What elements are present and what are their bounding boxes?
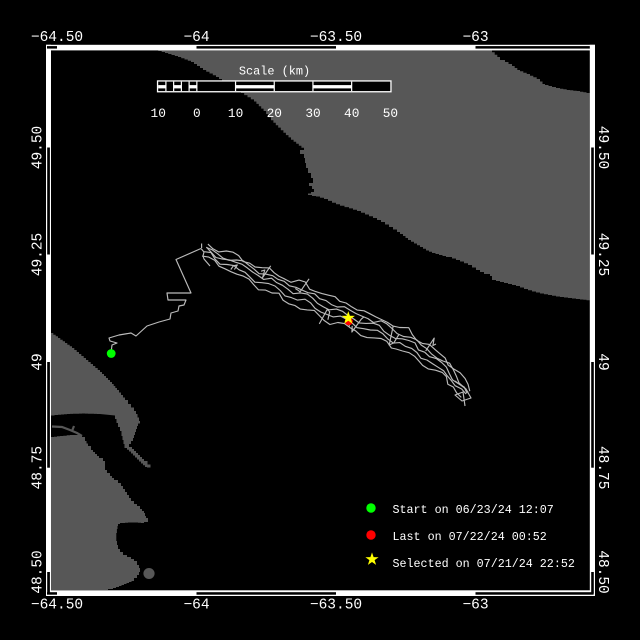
svg-text:−64.50: −64.50 <box>31 598 83 614</box>
svg-text:40: 40 <box>344 106 359 121</box>
svg-text:48.75: 48.75 <box>594 446 610 490</box>
svg-text:Scale (km): Scale (km) <box>239 65 310 79</box>
svg-text:49.50: 49.50 <box>594 126 610 170</box>
svg-text:−63: −63 <box>462 598 488 614</box>
svg-text:10: 10 <box>228 106 243 121</box>
svg-text:20: 20 <box>267 106 282 121</box>
svg-text:−64: −64 <box>183 598 209 614</box>
svg-text:49.25: 49.25 <box>594 233 610 277</box>
svg-text:49.25: 49.25 <box>31 233 47 277</box>
svg-text:50: 50 <box>383 106 398 121</box>
svg-text:−63: −63 <box>462 30 488 46</box>
svg-text:Start on 06/23/24 12:07: Start on 06/23/24 12:07 <box>393 503 554 517</box>
svg-text:Selected on 07/21/24 22:52: Selected on 07/21/24 22:52 <box>393 557 575 571</box>
svg-text:0: 0 <box>193 106 201 121</box>
svg-text:49: 49 <box>31 353 47 370</box>
svg-text:10: 10 <box>151 106 166 121</box>
svg-text:−63.50: −63.50 <box>310 598 362 614</box>
svg-text:Last on 07/22/24 00:52: Last on 07/22/24 00:52 <box>393 530 547 544</box>
svg-text:48.50: 48.50 <box>31 550 47 594</box>
svg-text:48.75: 48.75 <box>31 446 47 490</box>
svg-text:48.50: 48.50 <box>594 550 610 594</box>
svg-text:49: 49 <box>594 353 610 370</box>
svg-text:−63.50: −63.50 <box>310 30 362 46</box>
svg-text:−64: −64 <box>183 30 209 46</box>
svg-text:−64.50: −64.50 <box>31 30 83 46</box>
svg-text:49.50: 49.50 <box>31 126 47 170</box>
svg-text:30: 30 <box>305 106 320 121</box>
